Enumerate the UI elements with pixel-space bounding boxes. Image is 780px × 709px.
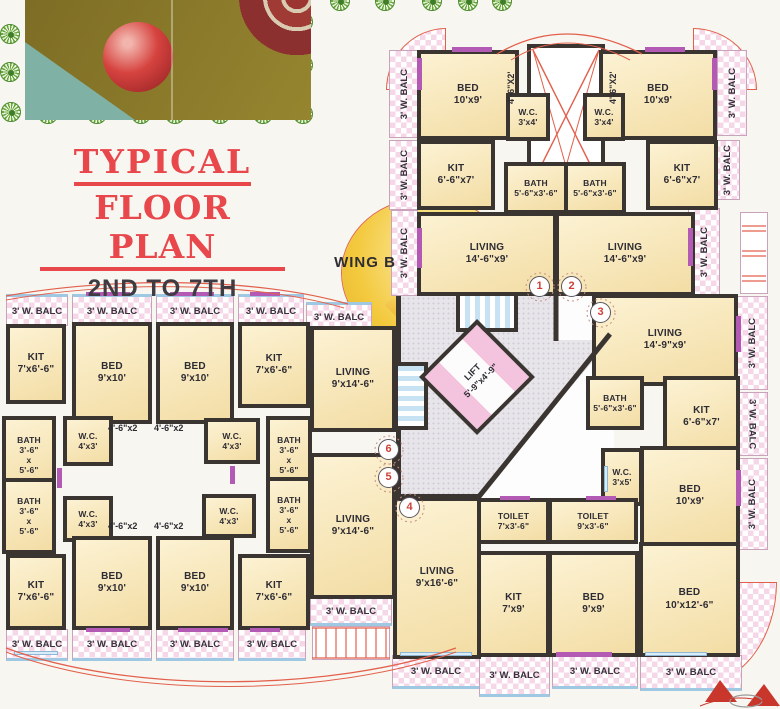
- photo-red-ball: [103, 22, 173, 92]
- room-label: LIVING 9'x14'-6": [332, 514, 374, 539]
- trellis: [312, 626, 390, 660]
- flat-number-5: 5: [378, 467, 399, 488]
- room-label: LIVING 14'-6"x9': [604, 242, 646, 267]
- room-bed: BED 9'x10': [156, 536, 234, 630]
- photo-thumbnail: [25, 0, 311, 120]
- dim-label: 4'-6"x2: [108, 423, 137, 433]
- room-kitchen: KIT 7'x6'-6": [238, 322, 310, 408]
- balcony: 3' W. BALC: [392, 655, 480, 689]
- room-label: LIVING 14'-9"x9': [644, 328, 686, 353]
- balcony-label: 3' W. BALC: [12, 306, 62, 317]
- balcony: 3' W. BALC: [479, 655, 550, 697]
- window-accent: [556, 652, 612, 657]
- room-kitchen: KIT 7'x6'-6": [238, 554, 310, 630]
- window-accent: [250, 628, 280, 632]
- room-bed: BED 9'x10': [72, 322, 152, 424]
- balcony-label: 3' W. BALC: [570, 666, 620, 677]
- balcony-label: 3' W. BALC: [247, 639, 297, 650]
- balcony-label: 3' W. BALC: [170, 639, 220, 650]
- balcony-label: 3' W. BALC: [699, 227, 710, 277]
- room-living: LIVING 9'x16'-6": [393, 497, 481, 659]
- photo-swirl: [195, 0, 311, 62]
- balcony-label: 3' W. BALC: [747, 479, 758, 529]
- room-label: BED 10'x12'-6": [665, 587, 713, 612]
- flower-icon: [375, 0, 395, 11]
- room-label: KIT 7'x6'-6": [256, 353, 293, 378]
- window-sill: [604, 466, 608, 492]
- window-accent: [645, 47, 685, 52]
- room-living: LIVING 14'-9"x9': [592, 294, 738, 386]
- room-bed: BED 9'x9': [548, 551, 639, 657]
- page-title-line1: TYPICAL: [74, 142, 251, 186]
- room-bath: BATH 3'-6" x 5'-6": [2, 478, 56, 554]
- room-label: W.C. 4'x3': [78, 509, 97, 529]
- room-label: BED 9'x9': [582, 592, 604, 617]
- room-bath: BATH 5'-6"x3'-6": [564, 162, 626, 214]
- room-label: KIT 7'x9': [502, 592, 524, 617]
- flower-icon: [0, 24, 20, 44]
- dim-label: 4'-6"x2: [108, 521, 137, 531]
- room-toilet: TOILET 9'x3'-6": [548, 498, 638, 544]
- room-bath: BATH 3'-6" x 5'-6": [266, 477, 312, 553]
- balcony: 3' W. BALC: [6, 629, 68, 661]
- balcony-label: 3' W. BALC: [747, 318, 758, 368]
- window-accent: [417, 58, 422, 90]
- flower-icon: [330, 0, 350, 11]
- room-label: W.C. 4'x3': [222, 431, 241, 451]
- window-accent: [736, 470, 741, 506]
- room-label: BATH 5'-6"x3'-6": [514, 178, 558, 198]
- room-label: TOILET 7'x3'-6": [498, 511, 529, 531]
- room-label: LIVING 9'x14'-6": [332, 367, 374, 392]
- room-label: BATH 3'-6" x 5'-6": [277, 435, 301, 476]
- room-bed: BED 10'x9': [640, 446, 740, 546]
- balcony: 3' W. BALC: [640, 655, 742, 691]
- balcony-label: 3' W. BALC: [12, 639, 62, 650]
- room-living: LIVING 9'x14'-6": [310, 326, 396, 432]
- room-label: BATH 5'-6"x3'-6": [593, 393, 637, 413]
- window-sill: [400, 652, 472, 656]
- balcony: 3' W. BALC: [389, 140, 419, 210]
- room-label: W.C. 4'x3': [78, 431, 97, 451]
- flower-icon: [1, 102, 21, 122]
- room-label: BATH 3'-6" x 5'-6": [17, 496, 41, 537]
- flat-number-2: 2: [561, 276, 582, 297]
- window-accent: [86, 628, 130, 632]
- dim-label: 4'-6"X2': [608, 52, 618, 104]
- window-accent: [688, 228, 693, 266]
- balcony-label: 3' W. BALC: [246, 306, 296, 317]
- balcony: 3' W. BALC: [238, 629, 306, 661]
- flower-icon: [458, 0, 478, 11]
- balcony-label: 3' W. BALC: [489, 670, 539, 681]
- room-label: BATH 3'-6" x 5'-6": [17, 435, 41, 476]
- balcony: 3' W. BALC: [717, 50, 747, 136]
- balcony: 3' W. BALC: [391, 210, 418, 296]
- photo-fold-line: [171, 0, 173, 120]
- room-label: BED 10'x9': [454, 83, 482, 108]
- trellis: [740, 212, 768, 294]
- room-label: W.C. 3'x5': [612, 467, 631, 487]
- room-bed: BED 10'x12'-6": [639, 542, 740, 657]
- window-accent: [500, 496, 530, 500]
- room-label: BED 9'x10': [98, 571, 126, 596]
- flower-icon: [0, 62, 20, 82]
- room-label: KIT 7'x6'-6": [18, 352, 55, 377]
- room-bath: BATH 5'-6"x3'-6": [504, 162, 568, 214]
- balcony-label: 3' W. BALC: [411, 666, 461, 677]
- balcony: 3' W. BALC: [72, 629, 152, 661]
- balcony-label: 3' W. BALC: [314, 312, 364, 323]
- room-kitchen: KIT 7'x9': [477, 551, 550, 657]
- window-accent: [452, 47, 492, 52]
- room-label: LIVING 9'x16'-6": [416, 566, 458, 591]
- balcony-label: 3' W. BALC: [747, 399, 758, 449]
- window-accent: [230, 466, 235, 484]
- room-label: KIT 6'-6"x7': [664, 163, 701, 188]
- balcony-label: 3' W. BALC: [399, 150, 410, 200]
- room-bed: BED 9'x10': [156, 322, 234, 424]
- balcony-label: 3' W. BALC: [170, 306, 220, 317]
- room-kitchen: KIT 6'-6"x7': [646, 140, 718, 210]
- lift-label: LIFT 5'-9"x4'-9": [453, 353, 501, 401]
- balcony-label: 3' W. BALC: [399, 69, 410, 119]
- wing-b-label: WING B: [320, 254, 410, 271]
- balcony: 3' W. BALC: [552, 655, 638, 689]
- flat-number-4: 4: [399, 497, 420, 518]
- flower-icon: [492, 0, 512, 11]
- staircase: [456, 292, 518, 332]
- room-label: KIT 6'-6"x7': [683, 405, 720, 430]
- room-label: BATH 5'-6"x3'-6": [573, 178, 617, 198]
- room-wc: W.C. 4'x3': [202, 494, 256, 538]
- window-accent: [417, 228, 422, 268]
- room-wc: W.C. 4'x3': [204, 418, 260, 464]
- room-label: BED 9'x10': [181, 571, 209, 596]
- room-toilet: TOILET 7'x3'-6": [477, 498, 550, 544]
- window-accent: [736, 316, 741, 352]
- room-bath: BATH 5'-6"x3'-6": [586, 376, 644, 430]
- balcony-label: 3' W. BALC: [722, 145, 733, 195]
- balcony-label: 3' W. BALC: [87, 639, 137, 650]
- flat-number-1: 1: [529, 276, 550, 297]
- page-title-line3: 2ND TO 7TH: [40, 275, 285, 303]
- balcony: 3' W. BALC: [310, 598, 392, 626]
- room-kitchen: KIT 6'-6"x7': [417, 140, 495, 210]
- room-label: BED 9'x10': [181, 361, 209, 386]
- balcony-label: 3' W. BALC: [666, 667, 716, 678]
- room-bed: BED 10'x9': [417, 50, 519, 140]
- room-label: W.C. 3'x4': [518, 107, 537, 127]
- dim-label: 4'-6"x2: [154, 521, 183, 531]
- room-label: BED 10'x9': [644, 83, 672, 108]
- room-wc: W.C. 3'x4': [583, 93, 625, 141]
- balcony-label: 3' W. BALC: [727, 68, 738, 118]
- flat-number-6: 6: [378, 439, 399, 460]
- room-label: KIT 7'x6'-6": [18, 580, 55, 605]
- window-sill: [645, 652, 707, 656]
- room-label: BED 9'x10': [98, 361, 126, 386]
- flower-icon: [422, 0, 442, 11]
- page-title-line2: FLOOR PLAN: [40, 188, 285, 271]
- room-label: KIT 6'-6"x7': [438, 163, 475, 188]
- window-accent: [178, 628, 228, 632]
- window-accent: [586, 496, 616, 500]
- room-bed: BED 9'x10': [72, 536, 152, 630]
- room-label: BATH 3'-6" x 5'-6": [277, 495, 301, 536]
- balcony: 3' W. BALC: [389, 50, 419, 138]
- room-label: TOILET 9'x3'-6": [577, 511, 608, 531]
- balcony: 3' W. BALC: [156, 629, 234, 661]
- flat-number-3: 3: [590, 302, 611, 323]
- room-label: W.C. 3'x4': [594, 107, 613, 127]
- balcony-label: 3' W. BALC: [87, 306, 137, 317]
- room-label: BED 10'x9': [676, 484, 704, 509]
- window-accent: [57, 468, 62, 488]
- window-accent: [712, 58, 717, 90]
- room-kitchen: KIT 7'x6'-6": [6, 324, 66, 404]
- balcony: 3' W. BALC: [736, 392, 768, 456]
- window-sill: [14, 651, 58, 655]
- dim-label: 4'-6"x2: [154, 423, 183, 433]
- room-label: LIVING 14'-6"x9': [466, 242, 508, 267]
- room-label: W.C. 4'x3': [219, 506, 238, 526]
- dim-label: 4'-6"X2': [506, 52, 516, 104]
- balcony-label: 3' W. BALC: [326, 606, 376, 617]
- room-label: KIT 7'x6'-6": [256, 580, 293, 605]
- page-title: TYPICAL FLOOR PLAN 2ND TO 7TH: [40, 142, 285, 303]
- room-kitchen: KIT 7'x6'-6": [6, 554, 66, 630]
- room-wc: W.C. 4'x3': [63, 416, 113, 466]
